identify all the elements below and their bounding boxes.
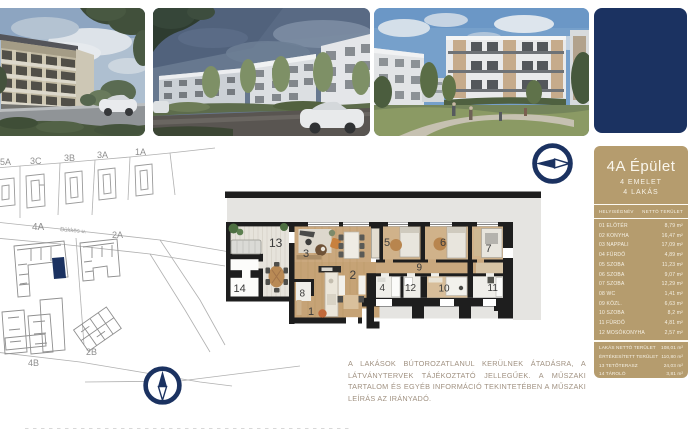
svg-text:12: 12 bbox=[405, 283, 417, 294]
svg-text:11: 11 bbox=[488, 283, 499, 294]
svg-text:1A: 1A bbox=[135, 147, 146, 157]
svg-text:3: 3 bbox=[303, 248, 309, 260]
svg-text:9: 9 bbox=[417, 263, 423, 274]
svg-text:5: 5 bbox=[384, 237, 390, 249]
svg-text:13: 13 bbox=[269, 236, 283, 250]
svg-text:14: 14 bbox=[234, 283, 246, 295]
svg-text:2: 2 bbox=[350, 268, 357, 282]
svg-text:3C: 3C bbox=[30, 156, 42, 166]
svg-text:2B: 2B bbox=[86, 347, 97, 357]
svg-text:3B: 3B bbox=[64, 153, 75, 163]
svg-text:7: 7 bbox=[486, 243, 492, 255]
svg-text:10: 10 bbox=[439, 284, 451, 295]
svg-text:2A: 2A bbox=[112, 230, 123, 240]
svg-text:4: 4 bbox=[380, 283, 386, 294]
svg-text:5A: 5A bbox=[0, 157, 11, 167]
svg-text:1: 1 bbox=[308, 306, 314, 318]
svg-text:4B: 4B bbox=[28, 358, 39, 368]
svg-text:6: 6 bbox=[440, 237, 446, 249]
svg-text:4A: 4A bbox=[32, 222, 45, 233]
svg-text:8: 8 bbox=[300, 289, 306, 300]
svg-text:Bükkös u.: Bükkös u. bbox=[60, 227, 87, 235]
svg-text:3A: 3A bbox=[97, 150, 108, 160]
